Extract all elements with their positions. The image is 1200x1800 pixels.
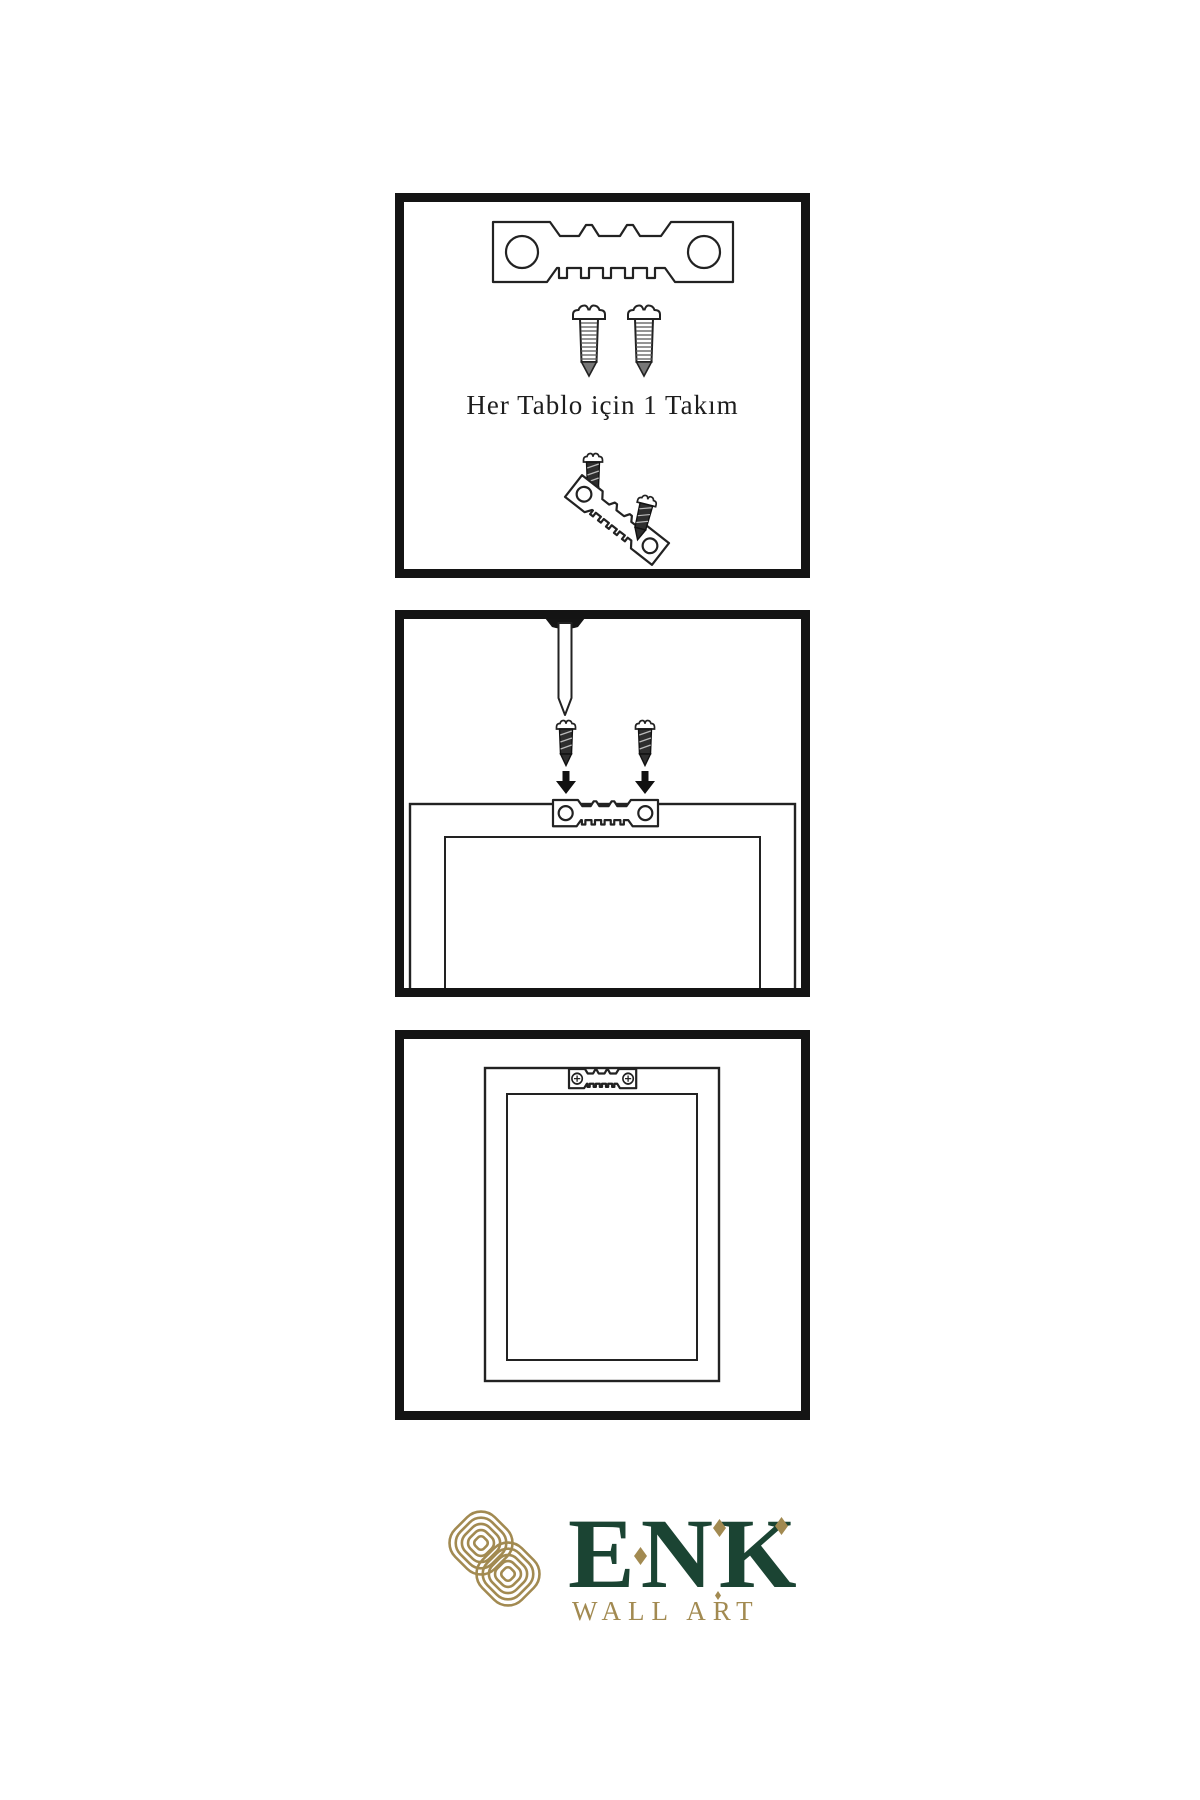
brand-logo: ENK WALL ART (430, 1490, 810, 1650)
instruction-sheet: Her Tablo için 1 Takım (0, 0, 1200, 1800)
down-arrow-icon (635, 771, 655, 794)
step-2-illustration (404, 619, 801, 988)
step-1-illustration (404, 202, 801, 569)
dark-screw-icon (557, 721, 576, 766)
phillips-head-icon (572, 1073, 582, 1083)
frame-back-outer (410, 804, 795, 988)
step-1-panel: Her Tablo için 1 Takım (395, 193, 810, 578)
frame-back-inner (507, 1094, 697, 1360)
step-3-panel (395, 1030, 810, 1420)
step-3-illustration (404, 1039, 801, 1411)
screw-icon (573, 306, 605, 377)
nail-icon (545, 619, 585, 715)
sawtooth-hanger-icon (493, 222, 733, 282)
down-arrow-icon (556, 771, 576, 794)
brand-subtitle: WALL ART (572, 1596, 760, 1627)
frame-back-outer (485, 1068, 719, 1381)
brand-name: ENK (568, 1504, 803, 1604)
phillips-head-icon (623, 1073, 633, 1083)
knot-emblem-icon (436, 1496, 554, 1621)
frame-back-inner (445, 837, 760, 988)
dark-screw-icon (636, 721, 655, 766)
screw-icon (628, 306, 660, 377)
sawtooth-hanger-icon (565, 475, 669, 565)
step-1-caption: Her Tablo için 1 Takım (404, 390, 801, 421)
step-2-panel (395, 610, 810, 997)
